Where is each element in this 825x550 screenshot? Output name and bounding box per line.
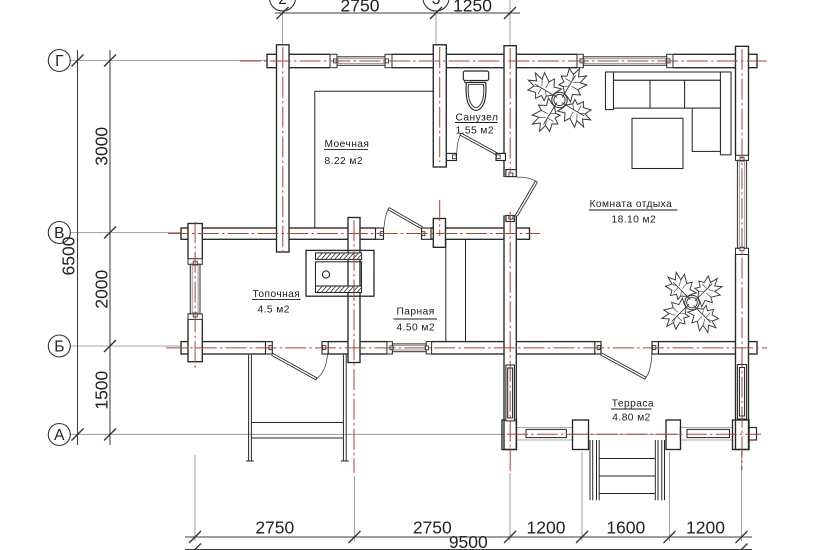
svg-text:Б: Б [54, 339, 64, 356]
svg-text:3: 3 [432, 0, 441, 8]
svg-text:9500: 9500 [449, 532, 488, 550]
svg-text:4.50 м2: 4.50 м2 [397, 323, 435, 334]
svg-text:1200: 1200 [686, 518, 725, 538]
svg-text:А: А [54, 427, 65, 444]
svg-text:1500: 1500 [92, 370, 112, 409]
svg-text:Комната отдыха: Комната отдыха [590, 199, 673, 210]
svg-text:3000: 3000 [92, 127, 112, 166]
svg-text:Терраса: Терраса [612, 398, 654, 409]
svg-text:2750: 2750 [255, 518, 294, 538]
svg-text:4.80 м2: 4.80 м2 [612, 412, 650, 423]
svg-text:2000: 2000 [92, 269, 112, 308]
svg-text:Г: Г [55, 53, 64, 70]
svg-text:Санузел: Санузел [456, 112, 499, 123]
svg-text:1250: 1250 [453, 0, 492, 16]
svg-text:2750: 2750 [413, 518, 452, 538]
svg-text:1.55 м2: 1.55 м2 [456, 126, 494, 137]
svg-text:18.10 м2: 18.10 м2 [612, 214, 657, 225]
svg-text:8.22 м2: 8.22 м2 [325, 156, 363, 167]
svg-text:1600: 1600 [606, 518, 645, 538]
svg-text:4.5 м2: 4.5 м2 [258, 304, 290, 315]
svg-text:Моечная: Моечная [325, 139, 370, 150]
svg-text:2: 2 [278, 0, 287, 8]
svg-text:6500: 6500 [59, 236, 79, 275]
svg-text:Парная: Парная [397, 307, 435, 318]
svg-text:Топочная: Топочная [253, 289, 301, 300]
svg-text:2750: 2750 [341, 0, 380, 16]
svg-text:1200: 1200 [527, 518, 566, 538]
